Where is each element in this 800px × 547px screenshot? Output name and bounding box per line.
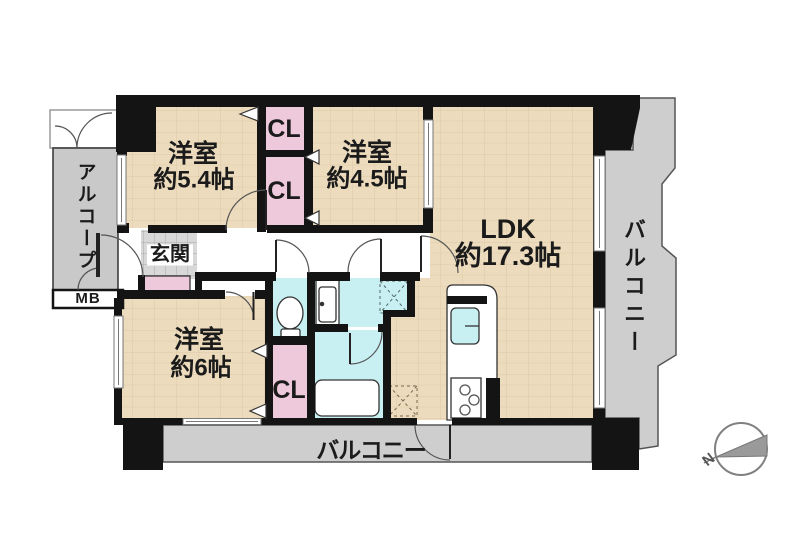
wall-bedroomB-ldk-top (423, 102, 433, 120)
closet-top-label: CL (267, 116, 300, 142)
wall-bottom-2 (452, 418, 593, 425)
closet-mid-label: CL (267, 178, 300, 204)
wall-wash-bath-1 (315, 324, 348, 332)
compass (704, 423, 767, 475)
alcove-label: アルコープ (72, 162, 99, 272)
door-arc-washroom (348, 239, 381, 272)
stove-burner-2 (469, 395, 479, 405)
wall-closet-bedroomB (304, 102, 313, 232)
wall-top (116, 95, 640, 107)
bedroom-b-size: 約4.5帖 (326, 166, 407, 191)
meter-box-label: MB (75, 291, 100, 307)
entrance-label: 玄関 (147, 245, 193, 266)
washbasin-faucet (320, 302, 323, 305)
ldk-floor-3 (415, 280, 435, 420)
bedroom-b-name: 洋室 (342, 140, 392, 166)
porch-outline (50, 110, 118, 148)
wall-block-bottomright (592, 418, 639, 470)
wall-kitchen-back (447, 296, 487, 304)
balcony-side-label: バルコニー (617, 218, 649, 358)
wall-corner-topleft (116, 95, 156, 152)
wall-bedroomC-north-1 (117, 290, 225, 299)
ldk-name: LDK (480, 215, 536, 243)
stove-burner-1 (460, 385, 470, 395)
wall-hall-south-2 (307, 272, 350, 281)
wall-closetC-top (265, 336, 309, 345)
wall-hall-north-2 (267, 225, 433, 233)
ldk-size: 約17.3帖 (455, 242, 562, 270)
wall-hall-south-1 (195, 272, 276, 281)
shoe-cabinet (144, 276, 190, 292)
wall-bath-east (383, 310, 391, 420)
door-arc-toilet (276, 240, 309, 273)
toilet-bowl (277, 297, 303, 329)
bedroom-a-size: 約5.4帖 (153, 167, 234, 192)
bedroom-c-size: 約6帖 (170, 355, 231, 380)
stove-burner-3 (460, 405, 470, 415)
bedroom-c-name: 洋室 (174, 327, 224, 353)
wall-kitchen-stub (486, 378, 500, 420)
floor-plan-drawing (0, 0, 800, 547)
balcony-bottom-label: バルコニー (316, 438, 426, 462)
wall-hall-north-1 (148, 225, 227, 233)
closet-bottom-label: CL (272, 377, 305, 403)
wall-toilet-east (307, 280, 315, 420)
bedroom-a-name: 洋室 (168, 141, 218, 167)
floor-plan-page: 洋室 約5.4帖 洋室 約4.5帖 LDK 約17.3帖 洋室 約6帖 CL C… (0, 0, 800, 547)
wall-block-bottomleft (123, 418, 163, 470)
wall-closet-divider (263, 150, 307, 157)
wall-entrance-side (138, 275, 145, 292)
bathtub (315, 380, 379, 416)
